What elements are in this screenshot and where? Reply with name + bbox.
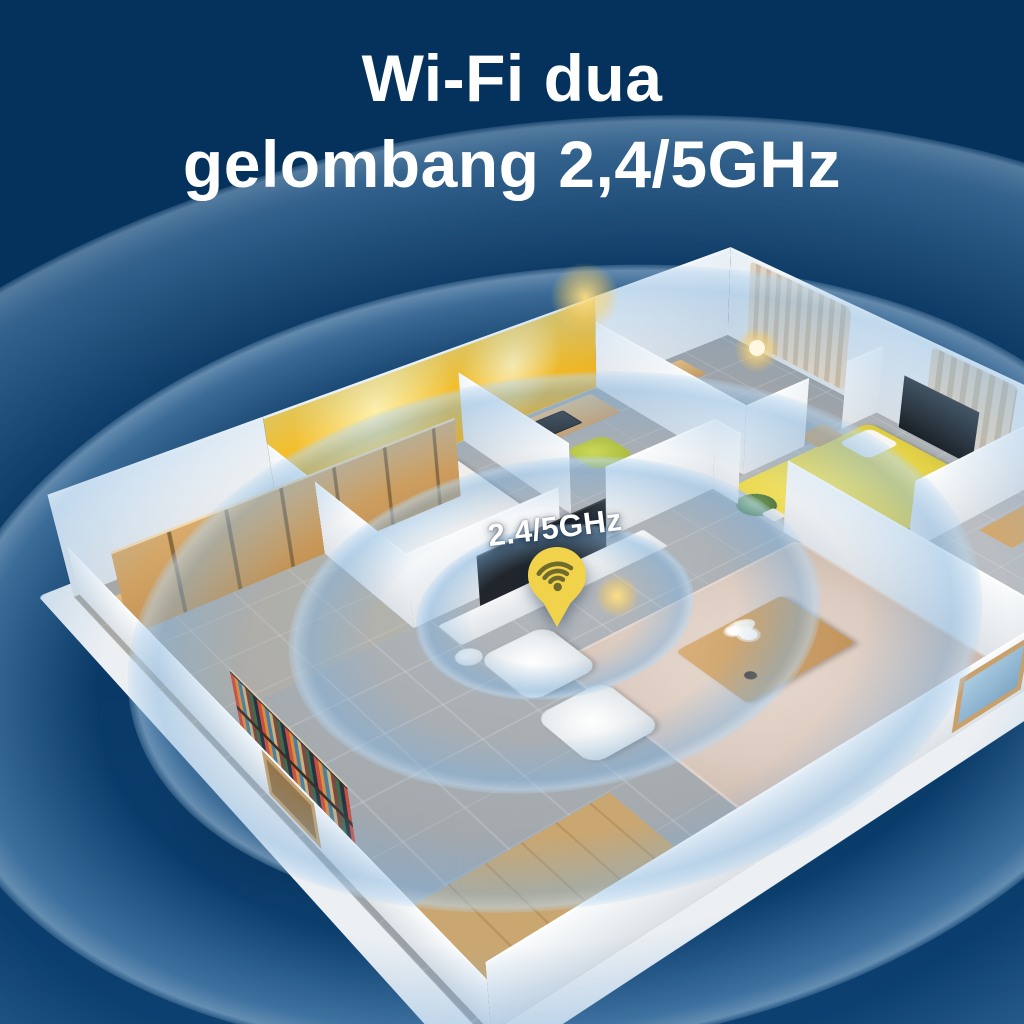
- page-title: Wi-Fi dua gelombang 2,4/5GHz: [0, 36, 1024, 208]
- wifi-pin-icon: [526, 545, 588, 629]
- promo-banner: 2.4/5GHz Wi-Fi dua gelombang 2,4/5GHz: [0, 0, 1024, 1024]
- bedroom2-side-wall: [713, 419, 741, 504]
- title-line-1: Wi-Fi dua: [0, 36, 1024, 122]
- title-line-2: gelombang 2,4/5GHz: [0, 122, 1024, 208]
